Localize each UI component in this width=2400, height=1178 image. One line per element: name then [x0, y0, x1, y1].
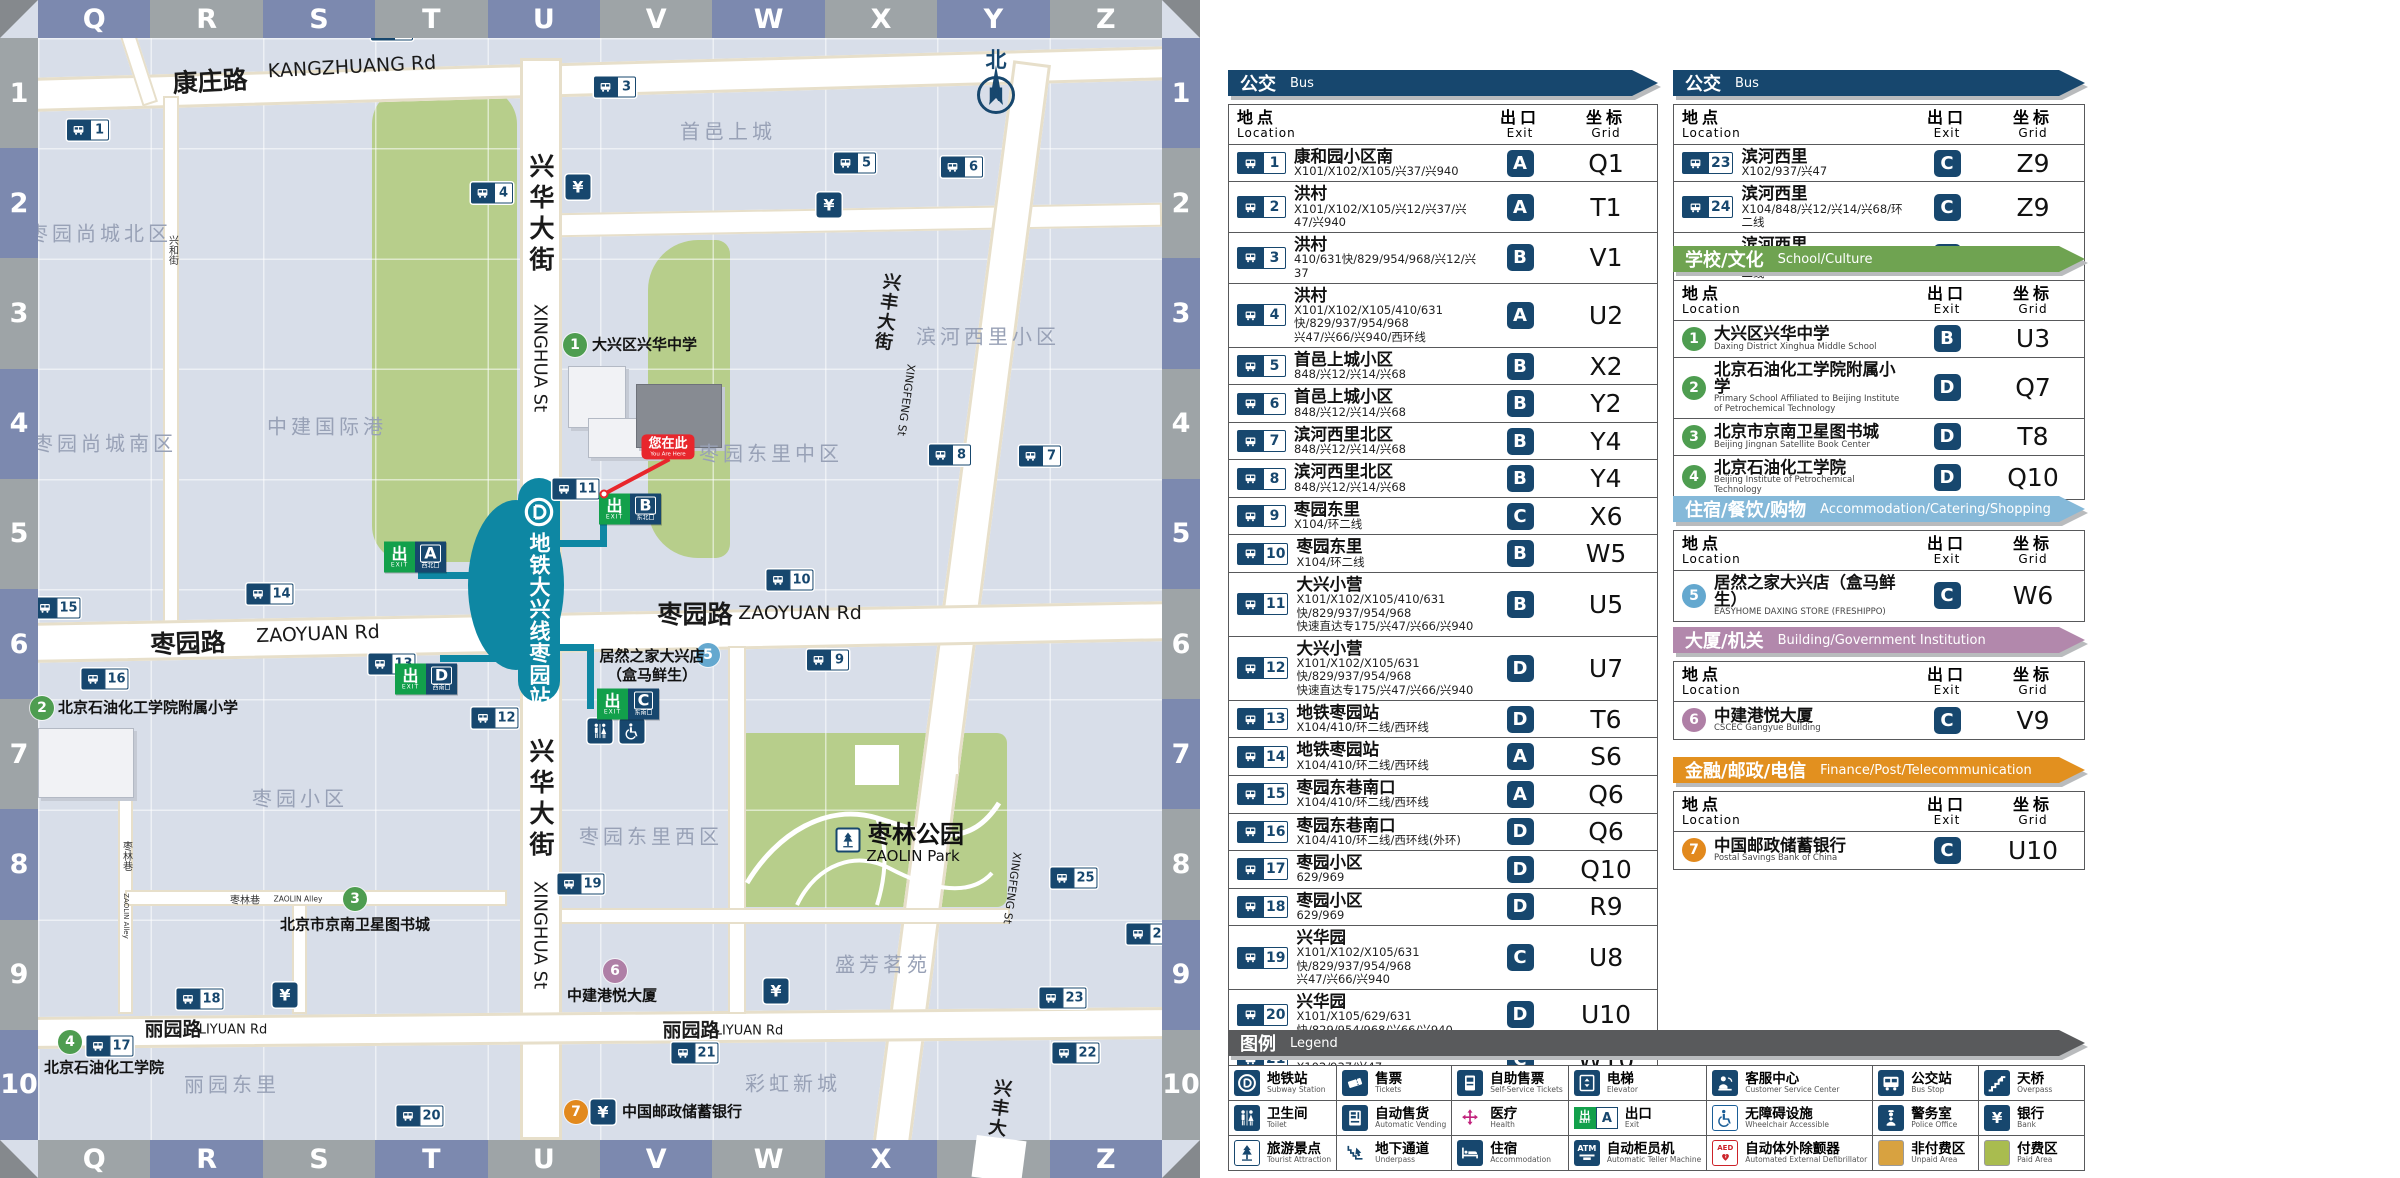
legend-title-zh: 图例	[1240, 1030, 1276, 1056]
street-map: 地铁大兴线枣园站 您在此 You Are Here 北 N 枣园尚城北区枣园尚城…	[0, 0, 1200, 1178]
exit-letter-chip: B	[1507, 244, 1534, 271]
bus-stop-number: 6	[1263, 393, 1286, 415]
grid-row-label-left: 2	[0, 148, 38, 258]
legend-item: 地下通道 Underpass	[1337, 1136, 1451, 1170]
bus-stop-number: 18	[1263, 896, 1288, 918]
grid-column-label-top: Q	[38, 0, 150, 38]
legend-title-en: Legend	[1290, 1036, 1338, 1051]
legend: 图例 Legend 地铁站 Subway Station 售票 Tickets …	[1228, 1030, 2085, 1171]
table-row: 8 滨河西里北区 848/兴12/兴14/兴68 B Y4	[1229, 460, 1657, 498]
legend-label-zh: 售票	[1375, 1072, 1402, 1086]
section-table: 地点Location 出口Exit 坐标Grid 1 大兴区兴华中学 Daxin…	[1673, 280, 2085, 500]
location-name: 枣园东里	[1294, 501, 1362, 518]
bus-stop-number: 15	[1263, 783, 1288, 805]
legend-label-zh: 地下通道	[1375, 1142, 1429, 1156]
map-bus-stop-14: 14	[246, 584, 293, 605]
table-row: 4 北京石油化工学院 Beijing Institute of Petroche…	[1674, 456, 2084, 499]
map-poi-label-1: 大兴区兴华中学	[592, 336, 697, 355]
road-label: LIYUAN Rd	[199, 1023, 268, 1038]
location-name: 滨河西里北区	[1294, 463, 1406, 480]
exit-caption: 东北口	[636, 516, 654, 522]
bus-stop-number: 24	[1708, 196, 1733, 218]
legend-item: 电梯 Elevator	[1569, 1066, 1706, 1100]
table-header-row: 地点Location 出口Exit 坐标Grid	[1229, 105, 1657, 145]
bus-stop-badge: 12	[1237, 657, 1288, 679]
exit-caption: 西南口	[432, 686, 450, 692]
atm-icon: ATM	[1574, 1140, 1600, 1166]
bus-routes: 848/兴12/兴14/兴68	[1294, 481, 1406, 494]
bus-icon	[834, 153, 857, 174]
area-label: 滨河西里小区	[916, 321, 1060, 350]
grid-coordinate: U10	[1563, 1000, 1649, 1029]
table-header-row: 地点Location 出口Exit 坐标Grid	[1674, 662, 2084, 702]
grid-coordinate: Y4	[1563, 464, 1649, 493]
legend-label-zh: 自动售货	[1375, 1107, 1446, 1121]
map-bus-stop-15: 15	[33, 598, 80, 619]
bus-routes: 848/兴12/兴14/兴68	[1294, 406, 1406, 419]
exit-letter-chip: A	[1507, 194, 1534, 221]
grid-row-label-left: 9	[0, 920, 38, 1030]
bus-routes: X101/X102/X105/631快/829/937/954/968	[1296, 657, 1477, 683]
bus-icon	[1237, 1004, 1263, 1026]
legend-label-zh: 卫生间	[1267, 1107, 1308, 1121]
bus-icon	[67, 120, 90, 141]
exit-a-connector	[418, 572, 480, 579]
legend-label-en: Underpass	[1375, 1156, 1429, 1164]
road-u2-minor	[556, 203, 1162, 238]
bus-stop-badge: 9	[1237, 505, 1286, 527]
column-header-grid: 坐标Grid	[1990, 109, 2076, 140]
bus-icon	[1237, 430, 1263, 452]
map-bus-stop-11: 11	[552, 479, 599, 500]
section-header: 学校/文化 School/Culture	[1673, 246, 2085, 272]
map-frame-corner	[1162, 0, 1200, 38]
grid-column-label-bottom: W	[712, 1140, 824, 1178]
column-header-location: 地点Location	[1682, 285, 1904, 316]
map-bus-stop-17: 17	[86, 1036, 133, 1057]
table-row: 3 北京市京南卫星图书城 Beijing Jingnan Satellite B…	[1674, 419, 2084, 456]
bus-routes: X104/410/环二线/西环线(外环)	[1296, 834, 1460, 847]
road-label: ZAOYUAN Rd	[256, 621, 380, 647]
bus-stop-badge: 4	[1237, 304, 1286, 326]
exit-letter-chip: B	[1507, 390, 1534, 417]
bus-stop-badge: 19	[1237, 947, 1288, 969]
legend-item: 天桥 Overpass	[1979, 1066, 2084, 1100]
road-label: 丽园路	[144, 1015, 201, 1042]
map-bus-stop-1: 1	[67, 120, 109, 141]
bus-stop-number: 21	[694, 1043, 718, 1064]
area-label: 枣园东里西区	[579, 821, 723, 850]
grid-coordinate: X2	[1563, 352, 1649, 381]
legend-label-en: Automatic Teller Machine	[1607, 1156, 1701, 1164]
location-name: 康和园小区南	[1294, 148, 1459, 165]
bus-stop-number: 20	[1263, 1004, 1288, 1026]
bus-icon	[594, 77, 617, 98]
bus-stop-number: 5	[1263, 355, 1286, 377]
legend-item: 自助售票 Self-Service Tickets	[1452, 1066, 1568, 1100]
bus-icon	[671, 1043, 694, 1064]
bus-stop-number: 7	[1263, 430, 1286, 452]
grid-column-label-top: W	[712, 0, 824, 38]
grid-column-label-bottom: U	[488, 1140, 600, 1178]
zaoyuan-station-area-map-page: 地铁大兴线枣园站 您在此 You Are Here 北 N 枣园尚城北区枣园尚城…	[0, 0, 2400, 1178]
legend-item: 出EXITA 出口 Exit	[1569, 1101, 1706, 1135]
legend-label-zh: 非付费区	[1911, 1142, 1965, 1156]
map-bus-stop-7: 7	[1019, 446, 1061, 467]
bus-icon	[1237, 746, 1263, 768]
location-name: 兴华园	[1296, 929, 1477, 946]
road-label: 康庄路	[172, 60, 249, 100]
map-poi-marker-2: 2	[30, 696, 54, 720]
legend-label-en: Paid Area	[2017, 1156, 2058, 1164]
grid-coordinate: Z9	[1990, 193, 2076, 222]
grid-coordinate: U10	[1990, 836, 2076, 865]
table-header-row: 地点Location 出口Exit 坐标Grid	[1674, 531, 2084, 571]
legend-label-zh: 付费区	[2017, 1142, 2058, 1156]
subway-logo-icon	[523, 496, 555, 528]
bus-routes: 629/969	[1296, 909, 1362, 922]
bus-stop-badge: 6	[1237, 393, 1286, 415]
bus-stop-badge: 8	[1237, 468, 1286, 490]
legend-label-zh: 无障碍设施	[1745, 1107, 1829, 1121]
grid-column-label-bottom: S	[263, 1140, 375, 1178]
bus-stop-number: 14	[269, 584, 293, 605]
grid-column-label-bottom: V	[600, 1140, 712, 1178]
location-name: 大兴小营	[1296, 576, 1477, 593]
exit-letter-chip: A	[1507, 150, 1534, 177]
legend-label-en: Bus Stop	[1911, 1086, 1952, 1094]
section-title-en: Bus	[1290, 76, 1314, 91]
table-row: 7 中国邮政储蓄银行 Postal Savings Bank of China …	[1674, 832, 2084, 869]
table-row: 24 滨河西里 X104/848/兴12/兴14/兴68/环二线 C Z9	[1674, 182, 2084, 233]
exit-caption: 东南口	[634, 711, 652, 717]
bus-icon	[368, 654, 391, 675]
map-poi-marker-7: 7	[564, 1100, 588, 1124]
location-name-en: EASYHOME DAXING STORE (FRESHIPPO)	[1714, 608, 1904, 618]
bus-icon	[471, 183, 494, 204]
compass-circle: N	[977, 76, 1015, 114]
section-title-zh: 公交	[1240, 70, 1276, 96]
bus-stop-number: 1	[1263, 152, 1286, 174]
green-strip-west	[372, 88, 517, 562]
location-name-en: Primary School Affiliated to Beijing Ins…	[1714, 395, 1904, 415]
table-row: 1 康和园小区南 X101/X102/X105/兴37/兴940 A Q1	[1229, 145, 1657, 183]
bus-routes: X104/410/环二线/西环线	[1296, 796, 1428, 809]
bus-stop-number: 7	[1042, 446, 1061, 467]
exit-letter-chip: C	[1934, 707, 1961, 734]
column-header-grid: 坐标Grid	[1990, 535, 2076, 566]
table-row: 7 滨河西里北区 848/兴12/兴14/兴68 B Y4	[1229, 423, 1657, 461]
map-exit-C: 出EXIT C东南口	[597, 689, 659, 720]
legend-label-zh: 自助售票	[1490, 1072, 1563, 1086]
bus-stop-badge: 15	[1237, 783, 1288, 805]
exit-letter-chip: C	[1934, 582, 1961, 609]
grid-coordinate: Y2	[1563, 389, 1649, 418]
table-row: 9 枣园东里 X104/环二线 C X6	[1229, 498, 1657, 536]
bus-icon	[1019, 446, 1042, 467]
bus-icon	[1237, 196, 1263, 218]
bus-stop-number: 15	[56, 598, 80, 619]
bus-routes: X101/X102/X105/410/631快/829/937/954/968	[1294, 304, 1477, 330]
map-bus-stop-8: 8	[929, 445, 971, 466]
bus-icon	[1039, 988, 1062, 1009]
exit-letter-chip: D	[1507, 655, 1534, 682]
section-title-zh: 学校/文化	[1685, 246, 1764, 272]
grid-column-label-bottom: Z	[1050, 1140, 1162, 1178]
section-table: 地点Location 出口Exit 坐标Grid 5 居然之家大兴店（盒马鲜生）…	[1673, 530, 2085, 622]
location-name: 北京市京南卫星图书城	[1714, 423, 1879, 440]
road-label: ZAOLIN Alley	[122, 893, 130, 939]
legend-item: AED 自动体外除颤器 Automated External Defibrill…	[1707, 1136, 1872, 1170]
exit-caption: 西北口	[421, 564, 439, 570]
grid-column-label-bottom: T	[375, 1140, 487, 1178]
location-name: 北京石油化工学院附属小学	[1714, 361, 1904, 396]
exit-letter: B	[635, 497, 655, 515]
bus-stop-badge: 11	[1237, 593, 1288, 615]
location-name: 洪村	[1294, 236, 1477, 253]
section-table: 地点Location 出口Exit 坐标Grid 6 中建港悦大厦 CSCEC …	[1673, 661, 2085, 740]
section-header: 住宿/餐饮/购物 Accommodation/Catering/Shopping	[1673, 496, 2085, 522]
bus-icon	[1237, 657, 1263, 679]
exit-letter-chip: D	[1507, 706, 1534, 733]
road-label: 兴华大街	[522, 738, 558, 862]
location-name: 枣园小区	[1296, 892, 1362, 909]
bus-stop-badge: 18	[1237, 896, 1288, 918]
exit-letter: C	[634, 692, 654, 710]
grid-row-label-right: 5	[1162, 479, 1200, 589]
table-row: 17 枣园小区 629/969 D Q10	[1229, 851, 1657, 889]
location-name: 地铁枣园站	[1296, 741, 1428, 758]
section-title-en: Bus	[1735, 76, 1759, 91]
bus-stop-badge: 1	[1237, 152, 1286, 174]
overpass-icon	[1984, 1070, 2010, 1096]
map-frame-corner	[0, 1140, 38, 1178]
bus-routes: X104/410/环二线/西环线	[1296, 721, 1428, 734]
legend-item: 旅游景点 Tourist Attraction	[1229, 1136, 1336, 1170]
compass: 北 N	[977, 44, 1015, 114]
tickets-icon	[1342, 1070, 1368, 1096]
toilet-icon	[1234, 1105, 1260, 1131]
exit-letter-chip: A	[1507, 743, 1534, 770]
bus-stop-number: 8	[1263, 468, 1286, 490]
grid-row-label-left: 10	[0, 1030, 38, 1140]
section-header: 大厦/机关 Building/Government Institution	[1673, 627, 2085, 653]
section-header: 公交 Bus	[1673, 70, 2085, 96]
bank-icon: ¥	[591, 1100, 616, 1125]
bank-icon: ¥	[817, 193, 842, 218]
location-name: 中国邮政储蓄银行	[1714, 837, 1846, 854]
table-row: 5 首邑上城小区 848/兴12/兴14/兴68 B X2	[1229, 348, 1657, 386]
automatic-vending-icon	[1342, 1105, 1368, 1131]
location-name-en: Beijing Institute of Petrochemical Techn…	[1714, 476, 1904, 496]
bus-routes: X101/X102/X105/兴37/兴940	[1294, 165, 1459, 178]
road-label: 枣林公园	[868, 815, 964, 850]
legend-label-zh: 银行	[2017, 1107, 2044, 1121]
grid-coordinate: T1	[1563, 193, 1649, 222]
bus-stop-badge: 20	[1237, 1004, 1288, 1026]
legend-item: ¥ 银行 Bank	[1979, 1101, 2084, 1135]
grid-coordinate: U2	[1563, 301, 1649, 330]
grid-coordinate: W6	[1990, 581, 2076, 610]
bus-stop-badge: 16	[1237, 821, 1288, 843]
bus-stop-number: 9	[1263, 505, 1286, 527]
location-name: 枣园小区	[1296, 854, 1362, 871]
table-row: 12 大兴小营 X101/X102/X105/631快/829/937/954/…	[1229, 637, 1657, 701]
map-poi-marker-6: 6	[603, 959, 627, 983]
poi-number: 3	[1682, 425, 1706, 449]
legend-label-zh: 住宿	[1490, 1142, 1551, 1156]
table-row: 2 北京石油化工学院附属小学 Primary School Affiliated…	[1674, 358, 2084, 419]
customer-service-center-icon	[1712, 1070, 1738, 1096]
grid-coordinate: R9	[1563, 892, 1649, 921]
section-title-en: Accommodation/Catering/Shopping	[1820, 502, 2051, 517]
police-office-icon	[1878, 1105, 1904, 1131]
map-bus-stop-16: 16	[81, 669, 128, 690]
location-name-en: Beijing Jingnan Satellite Book Center	[1714, 441, 1879, 451]
map-bus-stop-3: 3	[594, 77, 636, 98]
map-poi-marker-3: 3	[343, 887, 367, 911]
grid-coordinate: U3	[1990, 324, 2076, 353]
elevator-icon	[1574, 1070, 1600, 1096]
area-label: 盛芳茗苑	[835, 949, 931, 978]
park-building	[930, 740, 958, 774]
bus-icon	[1237, 468, 1263, 490]
bus-icon	[176, 989, 199, 1010]
legend-item: 公交站 Bus Stop	[1873, 1066, 1978, 1100]
bus-stop-number: 6	[964, 157, 983, 178]
table-row: 4 洪村 X101/X102/X105/410/631快/829/937/954…	[1229, 284, 1657, 348]
area-label: 中建国际港	[267, 411, 387, 440]
section-title-zh: 住宿/餐饮/购物	[1685, 496, 1806, 522]
section-accommodation: 住宿/餐饮/购物 Accommodation/Catering/Shopping…	[1673, 496, 2085, 622]
exit-chu-icon: 出EXIT	[384, 542, 415, 573]
location-name: 滨河西里北区	[1294, 426, 1406, 443]
table-row: 13 地铁枣园站 X104/410/环二线/西环线 D T6	[1229, 701, 1657, 739]
exit-c-connector	[587, 647, 594, 709]
legend-label-en: Wheelchair Accessible	[1745, 1121, 1829, 1129]
grid-coordinate: W5	[1563, 539, 1649, 568]
legend-label-en: Health	[1490, 1121, 1517, 1129]
legend-item: ATM 自动柜员机 Automatic Teller Machine	[1569, 1136, 1706, 1170]
xingfeng-band-gap	[972, 1135, 1027, 1178]
bus-stop-badge: 13	[1237, 708, 1288, 730]
grid-row-label-right: 10	[1162, 1030, 1200, 1140]
table-row: 18 枣园小区 629/969 D R9	[1229, 889, 1657, 927]
exit-letter-chip: B	[1507, 540, 1534, 567]
column-header-grid: 坐标Grid	[1563, 109, 1649, 140]
bus-icon	[1237, 304, 1263, 326]
map-bus-stop-20: 20	[396, 1106, 443, 1127]
exit-letter-chip: D	[1507, 818, 1534, 845]
bus-icon	[1237, 708, 1263, 730]
paid-area-icon	[1984, 1140, 2010, 1166]
legend-label-en: Unpaid Area	[1911, 1156, 1965, 1164]
table-row: 23 滨河西里 X102/937/兴47 C Z9	[1674, 145, 2084, 183]
location-name: 滨河西里	[1741, 148, 1827, 165]
legend-item: 卫生间 Toilet	[1229, 1101, 1336, 1135]
map-poi-label-4: 北京石油化工学院	[44, 1059, 164, 1078]
section-header: 公交 Bus	[1228, 70, 1658, 96]
map-frame-corner	[0, 0, 38, 38]
bus-stop-badge: 23	[1682, 152, 1733, 174]
grid-coordinate: V1	[1563, 243, 1649, 272]
bus-icon	[1682, 152, 1708, 174]
bus-icon	[807, 650, 830, 671]
bus-icon	[1237, 505, 1263, 527]
bus-stop-number: 14	[1263, 746, 1288, 768]
road-label: XINGHUA St	[530, 304, 551, 412]
table-row: 6 首邑上城小区 848/兴12/兴14/兴68 B Y2	[1229, 385, 1657, 423]
location-name: 滨河西里	[1741, 185, 1904, 202]
map-bus-stop-4: 4	[471, 183, 513, 204]
grid-coordinate: V9	[1990, 706, 2076, 735]
road-label: 丽园路	[662, 1016, 719, 1043]
location-name: 北京石油化工学院	[1714, 459, 1904, 476]
bus-stop-number: 23	[1708, 152, 1733, 174]
grid-column-label-top: Y	[937, 0, 1049, 38]
aed-icon: AED	[1712, 1140, 1738, 1166]
map-poi-label-3: 北京市京南卫星图书城	[280, 916, 430, 935]
poi-number: 2	[1682, 376, 1706, 400]
bus-stop-number: 4	[494, 183, 513, 204]
bus-stop-icon	[1878, 1070, 1904, 1096]
location-name-en: Postal Savings Bank of China	[1714, 854, 1846, 864]
bus-stop-badge: 17	[1237, 858, 1288, 880]
grid-row-label-right: 1	[1162, 38, 1200, 148]
bus-icon	[1052, 1043, 1075, 1064]
exit-icon: 出EXITA	[1574, 1105, 1618, 1131]
bus-icon	[1237, 543, 1263, 565]
bus-routes: 兴47/兴66/兴940	[1296, 973, 1477, 986]
wheelchair-accessible-icon	[620, 719, 645, 744]
map-bus-stop-19: 19	[557, 874, 604, 895]
bus-stop-number: 9	[830, 650, 849, 671]
table-row: 10 枣园东里 X104/环二线 B W5	[1229, 535, 1657, 573]
location-name-en: Daxing District Xinghua Middle School	[1714, 343, 1877, 353]
section-title-zh: 大厦/机关	[1685, 627, 1764, 653]
grid-coordinate: Q6	[1563, 780, 1649, 809]
exit-letter-chip: B	[1507, 428, 1534, 455]
location-name: 居然之家大兴店（盒马鲜生）	[1714, 574, 1904, 609]
area-label: 丽园东里	[184, 1069, 280, 1098]
exit-letter-chip: D	[1934, 423, 1961, 450]
bus-stop-number: 12	[494, 708, 518, 729]
legend-label-en: Toilet	[1267, 1121, 1308, 1129]
bus-stop-badge: 5	[1237, 355, 1286, 377]
road-label: 枣林巷	[119, 841, 134, 871]
map-poi-marker-1: 1	[563, 333, 587, 357]
bus-stop-number: 3	[1263, 247, 1286, 269]
legend-label-zh: 旅游景点	[1267, 1142, 1331, 1156]
column-header-exit: 出口Exit	[1904, 109, 1990, 140]
grid-column-label-bottom: R	[150, 1140, 262, 1178]
bank-icon: ¥	[273, 983, 298, 1008]
section-title-en: School/Culture	[1778, 252, 1873, 267]
legend-label-zh: 警务室	[1911, 1107, 1957, 1121]
legend-label-zh: 地铁站	[1267, 1072, 1326, 1086]
area-label: 枣园东里中区	[699, 438, 843, 467]
exit-chu-icon: 出EXIT	[395, 664, 426, 695]
section-title-en: Finance/Post/Telecommunication	[1820, 763, 2032, 778]
table-row: 15 枣园东巷南口 X104/410/环二线/西环线 A Q6	[1229, 776, 1657, 814]
location-name: 首邑上城小区	[1294, 351, 1406, 368]
map-exit-B: 出EXIT B东北口	[599, 494, 661, 525]
location-name: 枣园东巷南口	[1296, 817, 1460, 834]
legend-label-en: Automatic Vending	[1375, 1121, 1446, 1129]
location-name: 首邑上城小区	[1294, 388, 1406, 405]
area-label: 枣园尚城北区	[28, 218, 172, 247]
column-header-location: 地点Location	[1682, 109, 1904, 140]
